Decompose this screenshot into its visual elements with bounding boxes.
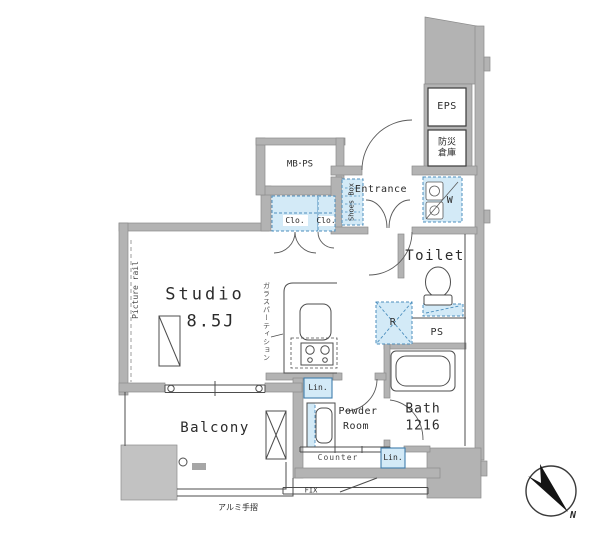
basin-side-box xyxy=(307,403,315,447)
toilet-counter-box xyxy=(423,304,463,316)
floor-plan-drawing xyxy=(0,0,600,533)
label-closet-left: Clo. xyxy=(285,217,304,225)
label-linen-lower: Lin. xyxy=(383,454,402,462)
wall-top-right-mass xyxy=(425,17,477,84)
label-picture-rail: Picture rail xyxy=(132,261,140,319)
label-refrigerator: R xyxy=(390,318,397,328)
compass xyxy=(526,464,576,516)
balcony-window xyxy=(165,381,265,396)
room-label-eps: EPS xyxy=(437,102,457,112)
toilet-tank-icon xyxy=(424,295,452,305)
room-label-entrance: Entrance xyxy=(355,185,407,195)
washbasin-bowl xyxy=(316,408,332,443)
room-label-mb-ps: MB･PS xyxy=(287,161,313,170)
room-size-bath: 1216 xyxy=(405,420,440,433)
wall-left-outer xyxy=(119,223,128,395)
compass-north-label: N xyxy=(570,511,576,521)
label-pipe-space: PS xyxy=(430,328,443,338)
floor-plan: Studio 8.5J Balcony Entrance Toilet Bath… xyxy=(0,0,600,533)
wall-studio-top xyxy=(119,223,269,231)
label-counter: Counter xyxy=(318,454,359,462)
label-closet-right: Clo. xyxy=(316,217,335,225)
room-label-toilet: Toilet xyxy=(405,249,465,263)
label-shoes-box: Shoes Box xyxy=(349,183,356,221)
room-label-bath: Bath xyxy=(405,403,440,416)
stove-icon xyxy=(301,343,333,365)
wall-bottom-window xyxy=(295,468,440,478)
label-glass-partition: ガラスパーティション xyxy=(263,282,270,362)
room-size-studio: 8.5J xyxy=(187,314,236,331)
balcony-pillar xyxy=(121,445,177,500)
label-aluminum-handrail: アルミ手摺 xyxy=(218,504,258,512)
label-fix-window: FIX xyxy=(305,488,318,495)
label-linen-upper: Lin. xyxy=(308,384,327,392)
entry-door-arc xyxy=(362,120,412,170)
bathtub-inner xyxy=(396,356,450,386)
room-label-disaster-1: 防災 xyxy=(438,139,456,148)
room-label-powder-1: Powder xyxy=(338,407,377,417)
room-label-studio: Studio xyxy=(165,287,244,304)
wall-right-outer xyxy=(475,26,484,460)
toilet-bowl-icon xyxy=(426,267,451,297)
kitchen-sink xyxy=(300,304,331,340)
room-label-disaster-2: 倉庫 xyxy=(438,150,456,159)
room-label-powder-2: Room xyxy=(343,422,369,432)
room-label-balcony: Balcony xyxy=(180,421,250,435)
label-washing-machine: W xyxy=(447,196,454,206)
balcony-drain-icon xyxy=(179,458,187,466)
